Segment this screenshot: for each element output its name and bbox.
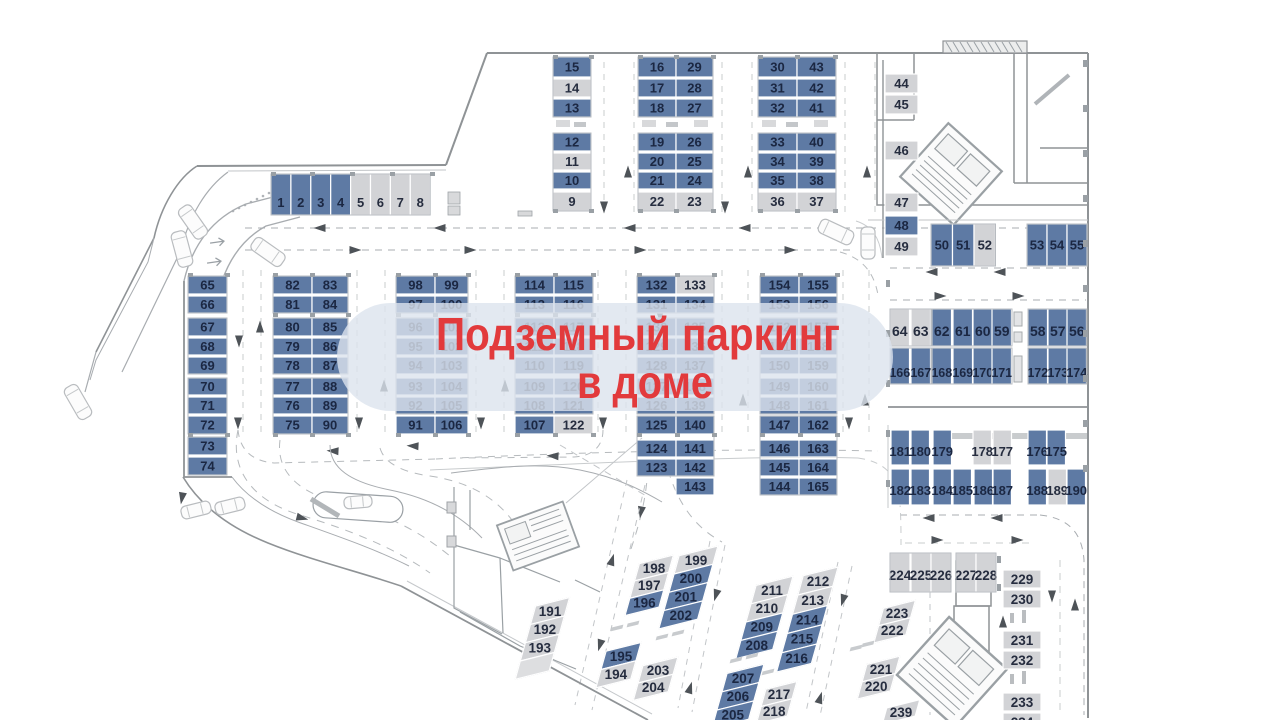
svg-text:9: 9	[568, 194, 575, 209]
svg-text:185: 185	[951, 483, 973, 498]
svg-text:214: 214	[796, 612, 819, 627]
svg-text:22: 22	[650, 194, 664, 209]
svg-text:182: 182	[889, 483, 911, 498]
svg-text:57: 57	[1050, 323, 1066, 339]
svg-text:230: 230	[1011, 592, 1034, 607]
svg-text:239: 239	[890, 705, 913, 720]
svg-text:199: 199	[685, 553, 708, 568]
svg-text:193: 193	[529, 641, 552, 656]
svg-text:3: 3	[317, 195, 324, 210]
svg-text:51: 51	[956, 238, 970, 253]
svg-text:86: 86	[323, 339, 337, 354]
svg-text:181: 181	[889, 444, 911, 459]
svg-text:196: 196	[633, 596, 656, 611]
svg-text:77: 77	[285, 379, 299, 394]
svg-text:166: 166	[889, 366, 910, 380]
svg-text:125: 125	[646, 418, 668, 433]
svg-text:32: 32	[770, 101, 784, 116]
svg-text:83: 83	[323, 278, 337, 293]
svg-text:70: 70	[200, 379, 214, 394]
svg-text:38: 38	[809, 173, 823, 188]
svg-text:141: 141	[684, 441, 706, 456]
svg-text:190: 190	[1065, 483, 1087, 498]
svg-text:191: 191	[539, 604, 562, 619]
svg-text:234: 234	[1011, 715, 1034, 720]
svg-text:6: 6	[377, 195, 384, 210]
svg-text:в доме: в доме	[577, 356, 713, 408]
svg-text:45: 45	[894, 97, 908, 112]
svg-text:180: 180	[909, 444, 931, 459]
svg-text:146: 146	[769, 441, 791, 456]
svg-text:68: 68	[200, 339, 214, 354]
svg-text:81: 81	[285, 297, 299, 312]
svg-text:82: 82	[285, 278, 299, 293]
svg-text:84: 84	[323, 297, 338, 312]
svg-text:183: 183	[909, 483, 931, 498]
svg-text:17: 17	[650, 81, 664, 96]
svg-text:14: 14	[565, 81, 580, 96]
svg-text:106: 106	[441, 418, 463, 433]
svg-text:53: 53	[1030, 238, 1044, 253]
svg-text:54: 54	[1050, 238, 1065, 253]
svg-text:98: 98	[408, 278, 422, 293]
svg-text:62: 62	[934, 323, 950, 339]
svg-text:66: 66	[200, 297, 214, 312]
svg-text:80: 80	[285, 320, 299, 335]
svg-text:37: 37	[809, 194, 823, 209]
svg-text:23: 23	[687, 194, 701, 209]
svg-text:58: 58	[1030, 323, 1046, 339]
svg-text:74: 74	[200, 459, 215, 474]
svg-text:123: 123	[646, 460, 668, 475]
svg-text:195: 195	[610, 649, 633, 664]
svg-text:64: 64	[892, 323, 908, 339]
svg-text:28: 28	[687, 81, 701, 96]
svg-text:205: 205	[722, 708, 745, 720]
svg-text:75: 75	[285, 418, 299, 433]
svg-text:133: 133	[684, 278, 706, 293]
svg-text:187: 187	[991, 483, 1013, 498]
svg-text:210: 210	[756, 601, 779, 616]
svg-text:73: 73	[200, 439, 214, 454]
svg-text:47: 47	[894, 195, 908, 210]
svg-text:155: 155	[807, 278, 829, 293]
svg-text:224: 224	[889, 568, 912, 583]
svg-text:16: 16	[650, 60, 664, 75]
svg-text:218: 218	[763, 704, 786, 719]
svg-text:140: 140	[684, 418, 706, 433]
svg-text:44: 44	[894, 76, 909, 91]
svg-text:65: 65	[200, 278, 214, 293]
svg-text:1: 1	[277, 195, 284, 210]
svg-text:69: 69	[200, 358, 214, 373]
svg-text:142: 142	[684, 460, 706, 475]
svg-text:231: 231	[1011, 633, 1034, 648]
svg-text:90: 90	[323, 418, 337, 433]
svg-text:85: 85	[323, 320, 337, 335]
svg-text:43: 43	[809, 60, 823, 75]
svg-text:192: 192	[534, 622, 557, 637]
svg-text:40: 40	[809, 135, 823, 150]
svg-text:26: 26	[687, 135, 701, 150]
svg-text:145: 145	[769, 460, 791, 475]
svg-text:143: 143	[684, 479, 706, 494]
svg-text:31: 31	[770, 81, 784, 96]
svg-text:222: 222	[881, 623, 904, 638]
svg-text:122: 122	[563, 418, 585, 433]
svg-text:46: 46	[894, 143, 908, 158]
svg-text:179: 179	[931, 444, 953, 459]
svg-text:172: 172	[1027, 366, 1048, 380]
svg-text:60: 60	[975, 323, 991, 339]
svg-text:Подземный паркинг: Подземный паркинг	[436, 308, 840, 360]
svg-text:19: 19	[650, 135, 664, 150]
svg-text:25: 25	[687, 154, 701, 169]
svg-text:167: 167	[910, 366, 931, 380]
svg-text:165: 165	[807, 479, 829, 494]
svg-text:13: 13	[565, 101, 579, 116]
svg-text:144: 144	[769, 479, 791, 494]
svg-text:178: 178	[971, 444, 993, 459]
svg-text:115: 115	[563, 278, 584, 293]
svg-text:49: 49	[894, 239, 908, 254]
svg-text:194: 194	[605, 667, 628, 682]
svg-text:114: 114	[524, 278, 546, 293]
svg-text:226: 226	[930, 568, 953, 583]
svg-text:200: 200	[680, 571, 703, 586]
svg-text:11: 11	[565, 154, 579, 169]
svg-text:52: 52	[978, 238, 992, 253]
svg-text:206: 206	[727, 689, 750, 704]
svg-text:63: 63	[913, 323, 929, 339]
svg-text:15: 15	[565, 60, 579, 75]
svg-text:55: 55	[1070, 238, 1084, 253]
svg-text:232: 232	[1011, 653, 1034, 668]
svg-text:213: 213	[801, 593, 824, 608]
svg-text:12: 12	[565, 135, 579, 150]
svg-text:7: 7	[397, 195, 404, 210]
svg-text:233: 233	[1011, 695, 1034, 710]
svg-text:36: 36	[770, 194, 784, 209]
svg-text:170: 170	[972, 366, 993, 380]
svg-text:201: 201	[675, 590, 698, 605]
svg-text:29: 29	[687, 60, 701, 75]
svg-text:42: 42	[809, 81, 823, 96]
svg-text:177: 177	[991, 444, 1013, 459]
svg-text:229: 229	[1011, 572, 1034, 587]
svg-text:107: 107	[524, 418, 546, 433]
svg-text:10: 10	[565, 173, 579, 188]
svg-text:173: 173	[1047, 366, 1068, 380]
svg-text:67: 67	[200, 320, 214, 335]
svg-text:34: 34	[770, 154, 785, 169]
svg-text:168: 168	[931, 366, 952, 380]
svg-text:71: 71	[200, 398, 214, 413]
svg-text:72: 72	[200, 418, 214, 433]
svg-text:87: 87	[323, 358, 337, 373]
svg-text:188: 188	[1026, 483, 1048, 498]
svg-text:24: 24	[687, 173, 702, 188]
svg-text:41: 41	[809, 101, 823, 116]
svg-text:228: 228	[975, 568, 998, 583]
svg-text:163: 163	[807, 441, 829, 456]
svg-text:88: 88	[323, 379, 337, 394]
svg-text:154: 154	[769, 278, 791, 293]
svg-text:56: 56	[1069, 323, 1085, 339]
svg-text:204: 204	[642, 680, 665, 695]
svg-text:99: 99	[444, 278, 458, 293]
svg-text:5: 5	[357, 195, 364, 210]
svg-text:169: 169	[952, 366, 973, 380]
svg-text:124: 124	[646, 441, 668, 456]
svg-text:132: 132	[646, 278, 668, 293]
svg-text:215: 215	[791, 632, 814, 647]
svg-text:79: 79	[285, 339, 299, 354]
svg-text:202: 202	[670, 608, 693, 623]
svg-text:21: 21	[650, 173, 664, 188]
svg-text:20: 20	[650, 154, 664, 169]
svg-text:8: 8	[417, 195, 424, 210]
svg-text:91: 91	[408, 418, 422, 433]
svg-text:2: 2	[297, 195, 304, 210]
svg-text:171: 171	[991, 366, 1012, 380]
svg-text:89: 89	[323, 398, 337, 413]
svg-text:220: 220	[865, 679, 888, 694]
svg-text:61: 61	[955, 323, 971, 339]
svg-text:35: 35	[770, 173, 784, 188]
svg-text:39: 39	[809, 154, 823, 169]
svg-text:76: 76	[285, 398, 299, 413]
svg-text:4: 4	[337, 195, 345, 210]
svg-text:208: 208	[746, 638, 769, 653]
svg-text:207: 207	[732, 671, 755, 686]
svg-text:211: 211	[761, 583, 783, 598]
svg-text:59: 59	[994, 323, 1010, 339]
svg-text:175: 175	[1045, 444, 1067, 459]
svg-text:18: 18	[650, 101, 664, 116]
svg-text:209: 209	[751, 620, 774, 635]
svg-text:164: 164	[807, 460, 829, 475]
svg-text:212: 212	[807, 574, 830, 589]
svg-text:33: 33	[770, 135, 784, 150]
svg-text:78: 78	[285, 358, 299, 373]
svg-text:30: 30	[770, 60, 784, 75]
svg-text:48: 48	[894, 218, 908, 233]
svg-text:50: 50	[935, 238, 949, 253]
svg-text:27: 27	[687, 101, 701, 116]
svg-text:216: 216	[785, 651, 808, 666]
svg-text:147: 147	[769, 418, 791, 433]
svg-text:162: 162	[807, 418, 829, 433]
